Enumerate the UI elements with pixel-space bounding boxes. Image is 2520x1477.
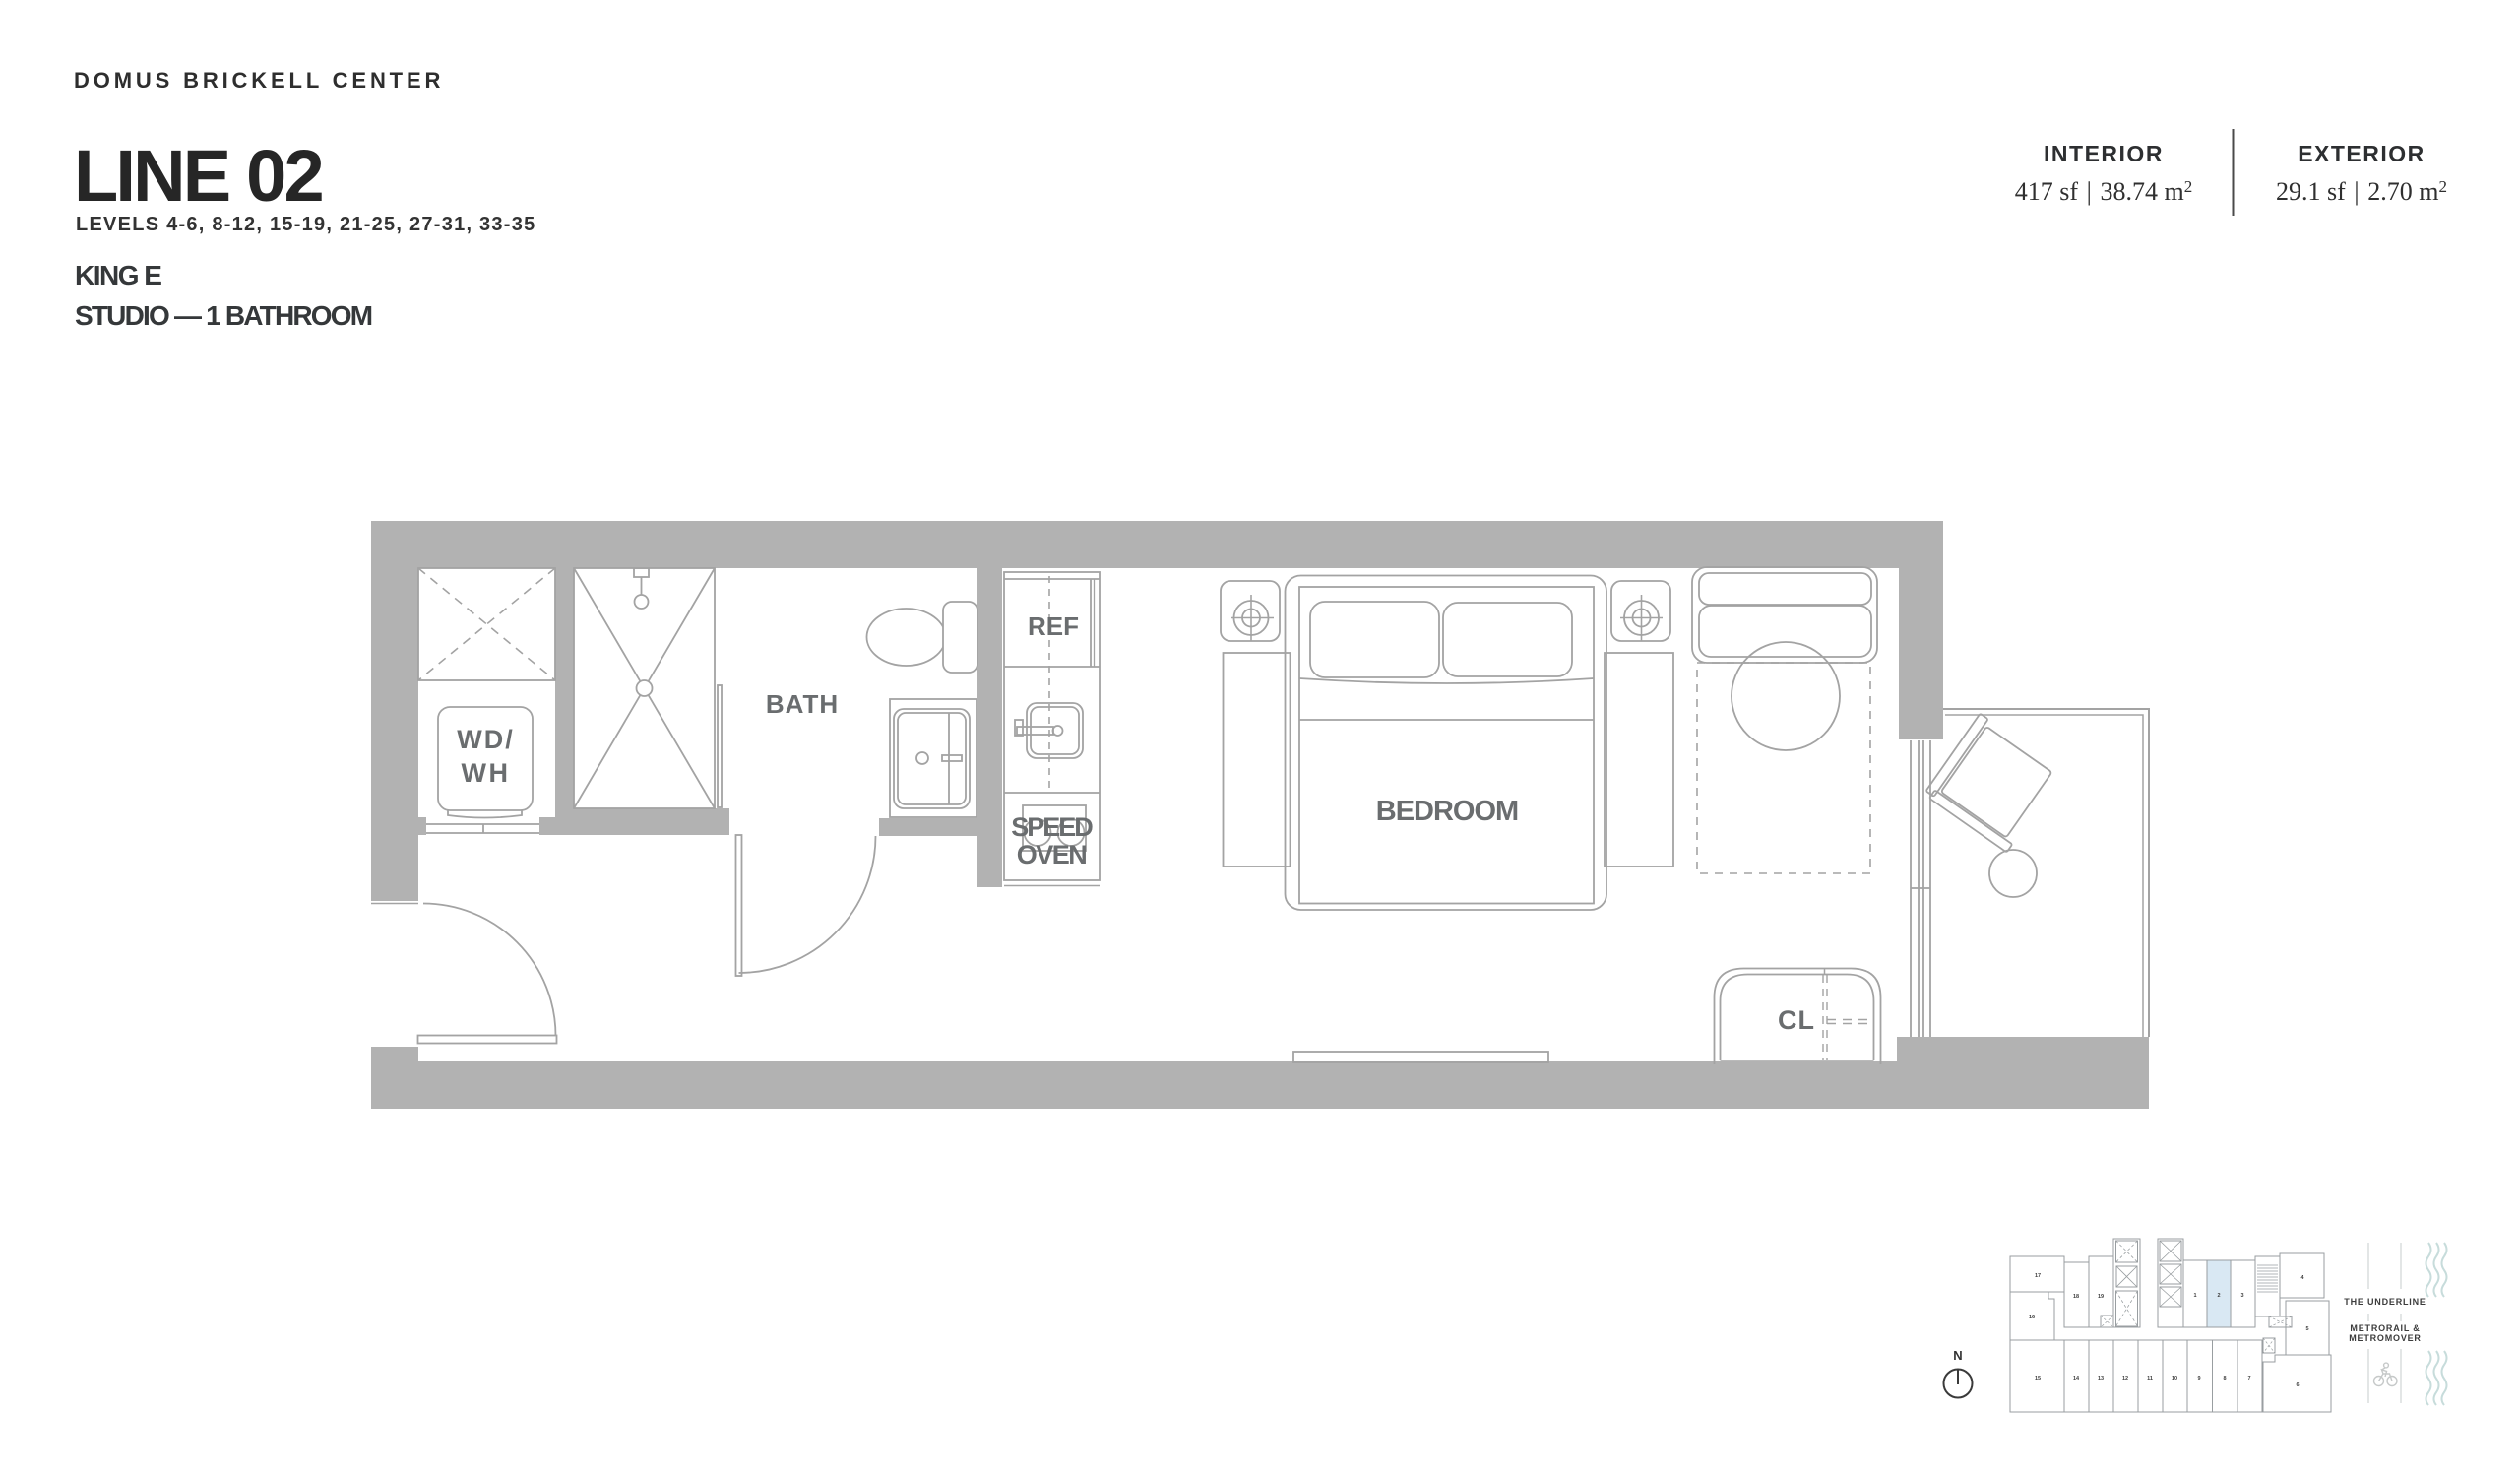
- svg-text:10: 10: [2172, 1376, 2177, 1381]
- svg-text:3: 3: [2240, 1293, 2243, 1299]
- svg-text:OVEN: OVEN: [1017, 840, 1087, 869]
- svg-text:WH: WH: [462, 758, 511, 788]
- svg-text:417 sf | 38.74 m2: 417 sf | 38.74 m2: [2015, 177, 2193, 206]
- svg-text:11: 11: [2147, 1376, 2153, 1381]
- svg-text:13: 13: [2098, 1376, 2104, 1381]
- svg-text:INTERIOR: INTERIOR: [2044, 141, 2164, 166]
- svg-text:REF: REF: [1028, 611, 1079, 641]
- svg-text:N: N: [1953, 1348, 1962, 1363]
- svg-text:16: 16: [2029, 1315, 2035, 1320]
- svg-text:14: 14: [2073, 1376, 2080, 1381]
- svg-text:DOMUS BRICKELL CENTER: DOMUS BRICKELL CENTER: [74, 68, 444, 93]
- svg-text:2: 2: [2217, 1293, 2220, 1299]
- svg-text:6: 6: [2296, 1382, 2299, 1388]
- svg-text:7: 7: [2247, 1376, 2250, 1381]
- svg-text:KING E: KING E: [75, 260, 161, 290]
- svg-text:METRORAIL &: METRORAIL &: [2350, 1323, 2420, 1333]
- svg-text:SPEED: SPEED: [1011, 812, 1093, 842]
- svg-text:12: 12: [2122, 1376, 2128, 1381]
- svg-text:LEVELS 4-6, 8-12, 15-19, 21-25: LEVELS 4-6, 8-12, 15-19, 21-25, 27-31, 3…: [76, 214, 535, 235]
- svg-text:LINE 02: LINE 02: [74, 135, 322, 217]
- svg-text:18: 18: [2073, 1294, 2079, 1300]
- svg-text:17: 17: [2035, 1273, 2041, 1279]
- svg-text:BEDROOM: BEDROOM: [1376, 796, 1518, 827]
- svg-text:8: 8: [2223, 1376, 2226, 1381]
- svg-text:1: 1: [2193, 1293, 2196, 1299]
- svg-text:THE UNDERLINE: THE UNDERLINE: [2344, 1297, 2425, 1307]
- svg-text:METROMOVER: METROMOVER: [2349, 1333, 2422, 1343]
- svg-text:15: 15: [2035, 1376, 2041, 1381]
- svg-text:EXTERIOR: EXTERIOR: [2298, 141, 2425, 166]
- svg-text:19: 19: [2098, 1294, 2104, 1300]
- svg-text:BATH: BATH: [766, 689, 839, 719]
- svg-text:WD/: WD/: [457, 725, 514, 754]
- svg-text:STUDIO — 1 BATHROOM: STUDIO — 1 BATHROOM: [75, 300, 372, 331]
- svg-text:CL: CL: [1778, 1005, 1815, 1035]
- svg-text:9: 9: [2197, 1376, 2200, 1381]
- svg-text:5: 5: [2305, 1326, 2308, 1332]
- svg-text:29.1 sf | 2.70 m2: 29.1 sf | 2.70 m2: [2276, 177, 2447, 206]
